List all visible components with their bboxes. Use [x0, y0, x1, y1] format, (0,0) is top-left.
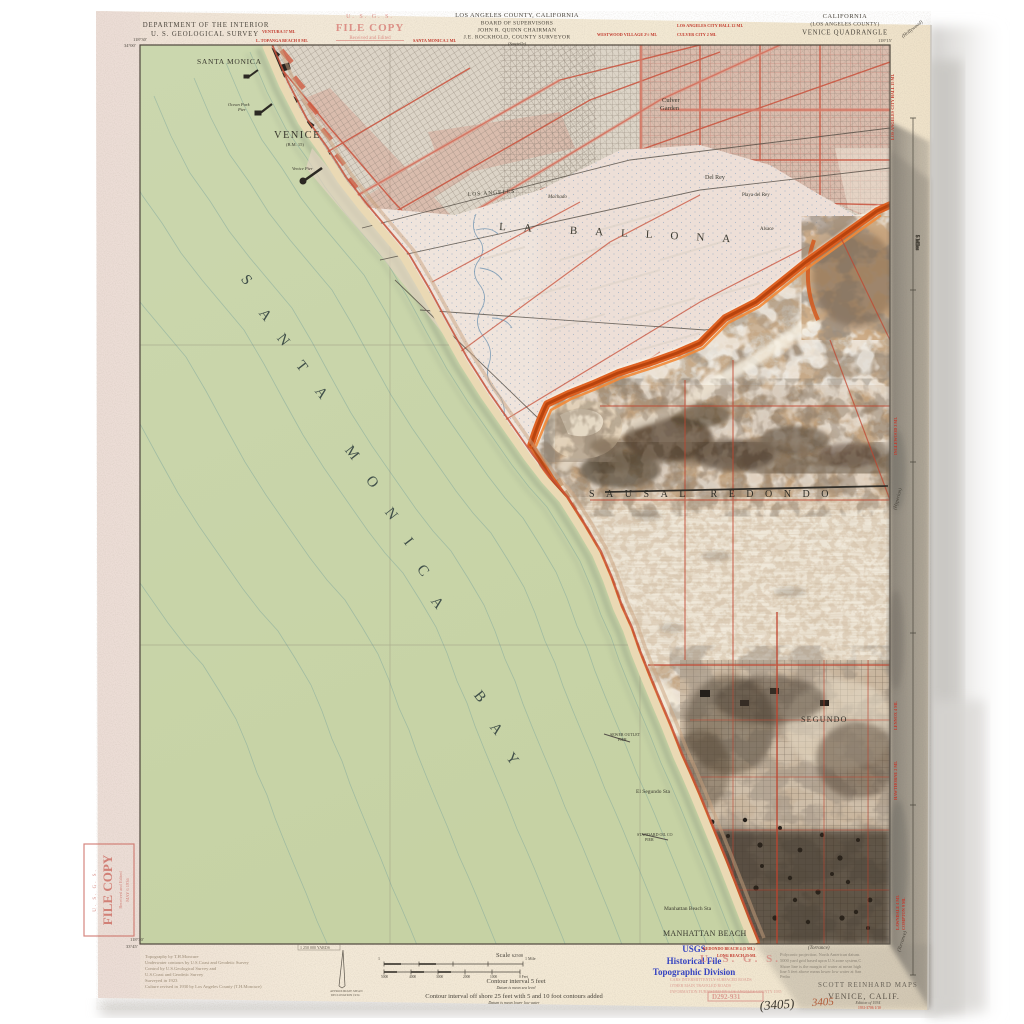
svg-text:LOS ANGELES CITY HALL 15 MI.: LOS ANGELES CITY HALL 15 MI.: [890, 74, 895, 140]
svg-text:VENICE: VENICE: [274, 130, 321, 141]
svg-text:VENICE QUADRANGLE: VENICE QUADRANGLE: [802, 30, 888, 37]
svg-text:Topographic Division: Topographic Division: [653, 967, 735, 977]
svg-text:LAWNDALE 4 MI.: LAWNDALE 4 MI.: [895, 895, 900, 930]
svg-text:Topography by T.H.Moncure: Topography by T.H.Moncure: [145, 954, 199, 959]
svg-text:SAUSAL REDONDO: SAUSAL REDONDO: [589, 489, 840, 500]
svg-text:SCOTT REINHARD MAPS: SCOTT REINHARD MAPS: [818, 981, 918, 989]
svg-text:Datum is mean sea level: Datum is mean sea level: [495, 985, 536, 990]
svg-text:5000: 5000: [381, 975, 388, 979]
svg-text:Pier: Pier: [237, 107, 246, 112]
svg-text:WESTWOOD VILLAGE 2½ MI.: WESTWOOD VILLAGE 2½ MI.: [597, 32, 657, 37]
svg-text:MANHATTAN BEACH: MANHATTAN BEACH: [663, 929, 747, 938]
svg-text:COMPTON 9 MI.: COMPTON 9 MI.: [901, 897, 906, 930]
svg-text:VENTURA 57 MI.: VENTURA 57 MI.: [262, 29, 295, 34]
svg-text:Culture revised in 1930 by Los: Culture revised in 1930 by Los Angeles C…: [145, 984, 262, 989]
svg-text:HAWTHORNE 2 MI.: HAWTHORNE 2 MI.: [893, 761, 898, 800]
svg-text:CULVER CITY 2 MI.: CULVER CITY 2 MI.: [677, 32, 716, 37]
svg-text:34°00': 34°00': [124, 43, 136, 48]
svg-text:Pedro: Pedro: [780, 974, 791, 979]
svg-text:1 Mile: 1 Mile: [525, 956, 536, 961]
svg-text:3405: 3405: [811, 996, 835, 1009]
svg-text:3000: 3000: [436, 975, 443, 979]
svg-text:Surveyed in 1923: Surveyed in 1923: [145, 978, 178, 983]
svg-text:U. S. GEOLOGICAL SURVEY: U. S. GEOLOGICAL SURVEY: [151, 31, 259, 38]
svg-text:D292-931: D292-931: [712, 993, 741, 1001]
svg-text:LOS ANGELES CITY HALL 12 MI.: LOS ANGELES CITY HALL 12 MI.: [677, 23, 743, 28]
svg-text:U. S. G. S.: U. S. G. S.: [700, 953, 781, 965]
svg-text:SEGUNDO: SEGUNDO: [801, 715, 848, 724]
svg-text:Datum is mean lower low water: Datum is mean lower low water: [487, 1000, 540, 1005]
svg-text:Contour interval off shore 25: Contour interval off shore 25 feet with …: [425, 993, 603, 1000]
svg-text:2000: 2000: [463, 975, 470, 979]
svg-text:(B.M. 15): (B.M. 15): [286, 142, 304, 147]
svg-text:STANDARD OIL CO: STANDARD OIL CO: [637, 832, 673, 837]
svg-text:El Segundo Sta: El Segundo Sta: [636, 789, 670, 795]
svg-text:Received and Edited: Received and Edited: [118, 871, 123, 909]
svg-text:4000: 4000: [409, 975, 416, 979]
svg-text:J.E. ROCKHOLD, COUNTY SURVEYOR: J.E. ROCKHOLD, COUNTY SURVEYOR: [464, 35, 571, 41]
svg-text:U. S. G. S.: U. S. G. S.: [346, 14, 394, 20]
svg-text:Del Rey: Del Rey: [705, 175, 725, 181]
svg-text:1 250 000 YARDS: 1 250 000 YARDS: [300, 945, 330, 950]
svg-text:DEPARTMENT OF THE INTERIOR: DEPARTMENT OF THE INTERIOR: [143, 22, 270, 29]
svg-text:Underwater contours by U.S.Coa: Underwater contours by U.S.Coast and Geo…: [145, 960, 250, 965]
svg-text:U. S. G. S.: U. S. G. S.: [93, 868, 98, 912]
svg-text:Scale 62500: Scale 62500: [496, 952, 524, 959]
svg-text:Venice Pier: Venice Pier: [292, 166, 313, 171]
svg-text:118°15': 118°15': [878, 38, 892, 43]
svg-text:U.S.Coast and Geodetic Survey: U.S.Coast and Geodetic Survey: [145, 972, 204, 977]
svg-text:(Sawtelle): (Sawtelle): [508, 41, 527, 46]
svg-text:CALIFORNIA: CALIFORNIA: [823, 13, 868, 20]
svg-text:(3405): (3405): [759, 996, 795, 1013]
svg-text:Machado: Machado: [547, 195, 567, 200]
svg-text:FILE COPY: FILE COPY: [336, 22, 405, 34]
svg-text:118°30': 118°30': [133, 37, 147, 42]
svg-text:118°30': 118°30': [130, 937, 144, 942]
svg-text:Culver: Culver: [662, 97, 681, 104]
svg-text:INGLEWOOD 3 MI.: INGLEWOOD 3 MI.: [893, 417, 898, 455]
svg-text:PIER: PIER: [618, 737, 627, 742]
svg-text:(LOS ANGELES COUNTY): (LOS ANGELES COUNTY): [810, 21, 879, 28]
svg-text:CARS INTERMITTENTLY-SURFACED R: CARS INTERMITTENTLY-SURFACED ROADS: [670, 977, 752, 982]
svg-text:BOARD OF SUPERVISORS: BOARD OF SUPERVISORS: [481, 21, 553, 27]
svg-text:33°45': 33°45': [126, 944, 138, 949]
svg-text:OTHER MAIN TRAVELED ROADS: OTHER MAIN TRAVELED ROADS: [670, 983, 731, 988]
svg-text:PIER: PIER: [645, 837, 654, 842]
svg-text:1931-3706 1/10: 1931-3706 1/10: [858, 1006, 881, 1010]
svg-text:JOHN R. QUINN CHAIRMAN: JOHN R. QUINN CHAIRMAN: [478, 28, 557, 34]
svg-text:Contour interval 5 feet: Contour interval 5 feet: [486, 978, 545, 985]
svg-text:DECLINATION 1934: DECLINATION 1934: [331, 993, 360, 997]
svg-text:(Torrance): (Torrance): [808, 946, 830, 951]
svg-text:SANTA MONICA 2 MI.: SANTA MONICA 2 MI.: [413, 38, 456, 43]
svg-text:LOS ANGELES COUNTY, CALIFORNIA: LOS ANGELES COUNTY, CALIFORNIA: [455, 12, 579, 19]
svg-text:Polyconic projection. North Am: Polyconic projection. North American dat…: [780, 952, 860, 957]
svg-text:REDONDO BEACH 4 (5 MI.): REDONDO BEACH 4 (5 MI.): [703, 946, 755, 951]
svg-text:SANTA MONICA: SANTA MONICA: [197, 57, 262, 66]
svg-text:MAY 6 1936: MAY 6 1936: [125, 878, 130, 902]
svg-text:Garden: Garden: [660, 105, 680, 112]
svg-text:LENNOX 4 MI.: LENNOX 4 MI.: [893, 701, 898, 730]
svg-text:Alsace: Alsace: [760, 227, 774, 232]
svg-text:Control by U.S.Geological Surv: Control by U.S.Geological Survey and: [145, 966, 217, 971]
svg-text:1: 1: [378, 956, 380, 961]
svg-text:5 Miles: 5 Miles: [914, 235, 919, 250]
svg-text:line 5 feet above mean lower l: line 5 feet above mean lower low water a…: [780, 969, 862, 974]
svg-text:Edition of 1934: Edition of 1934: [855, 1000, 881, 1005]
svg-text:Playa del Rey: Playa del Rey: [742, 193, 770, 198]
svg-text:Manhattan Beach Sta: Manhattan Beach Sta: [664, 906, 712, 912]
svg-text:L. TOPANGA BEACH 8 MI.: L. TOPANGA BEACH 8 MI.: [256, 38, 308, 43]
svg-text:FILE COPY: FILE COPY: [100, 854, 115, 925]
